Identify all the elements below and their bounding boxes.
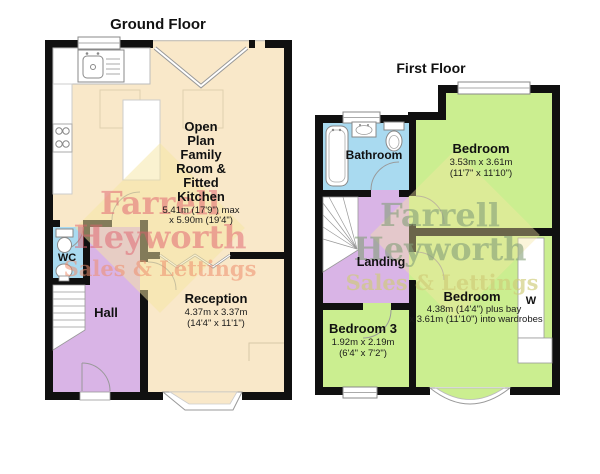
landing-label: Landing [357, 255, 406, 269]
floorplan-svg: Farrell Heyworth Sales & Lettings Ground… [0, 0, 600, 474]
svg-text:Family: Family [180, 147, 222, 162]
first-floor-title: First Floor [396, 60, 466, 76]
sink-icon [78, 50, 124, 82]
hall-label: Hall [94, 305, 118, 320]
floorplan-image: Farrell Heyworth Sales & Lettings Ground… [0, 0, 600, 474]
recess [518, 338, 552, 363]
svg-text:(14'4" x 11'1"): (14'4" x 11'1") [187, 318, 245, 329]
watermark-text: Sales & Lettings [346, 270, 539, 295]
svg-text:4.37m x 3.37m: 4.37m x 3.37m [185, 307, 248, 318]
svg-text:Bedroom 3: Bedroom 3 [329, 321, 397, 336]
svg-text:3.53m x 3.61m: 3.53m x 3.61m [450, 157, 513, 168]
wc-label: WC [58, 252, 76, 264]
svg-text:Reception: Reception [185, 291, 248, 306]
exterior-notch [408, 85, 438, 112]
basin-icon [352, 122, 376, 137]
svg-text:Bedroom: Bedroom [443, 289, 500, 304]
svg-text:(6'4" x 7'2"): (6'4" x 7'2") [339, 348, 387, 359]
ground-floor-plan: Farrell Heyworth Sales & Lettings Ground… [45, 16, 292, 410]
svg-text:Kitchen: Kitchen [177, 189, 225, 204]
bathroom-label: Bathroom [346, 148, 403, 162]
bay-window-icon [163, 392, 242, 410]
svg-text:x 3.61m (11'10") into wardrobe: x 3.61m (11'10") into wardrobes [409, 314, 543, 325]
svg-text:(11'7" x 11'10"): (11'7" x 11'10") [450, 168, 512, 179]
toilet-icon [56, 229, 73, 253]
svg-text:x 5.90m (19'4"): x 5.90m (19'4") [169, 215, 233, 226]
bay-window-icon [430, 387, 510, 404]
first-floor-plan: Farrell Heyworth Sales & Lettings First … [315, 60, 560, 404]
svg-text:Fitted: Fitted [183, 175, 218, 190]
bedroom1-label: Bedroom 3.53m x 3.61m (11'7" x 11'10") [450, 141, 513, 179]
svg-text:1.92m x 2.19m: 1.92m x 2.19m [332, 337, 395, 348]
svg-text:Bedroom: Bedroom [452, 141, 509, 156]
toilet-icon [384, 122, 404, 151]
hob-icon [53, 124, 72, 152]
bedroom3-label: Bedroom 3 1.92m x 2.19m (6'4" x 7'2") [329, 321, 397, 359]
svg-text:Plan: Plan [187, 133, 215, 148]
watermark-text: Sales & Lettings [64, 256, 257, 281]
wardrobe-label: W [526, 295, 537, 307]
reception-label: Reception 4.37m x 3.37m (14'4" x 11'1") [185, 291, 248, 329]
svg-text:Room &: Room & [176, 161, 226, 176]
ground-floor-title: Ground Floor [110, 16, 206, 33]
svg-text:Open: Open [184, 119, 217, 134]
watermark-text: Farrell [380, 196, 500, 234]
